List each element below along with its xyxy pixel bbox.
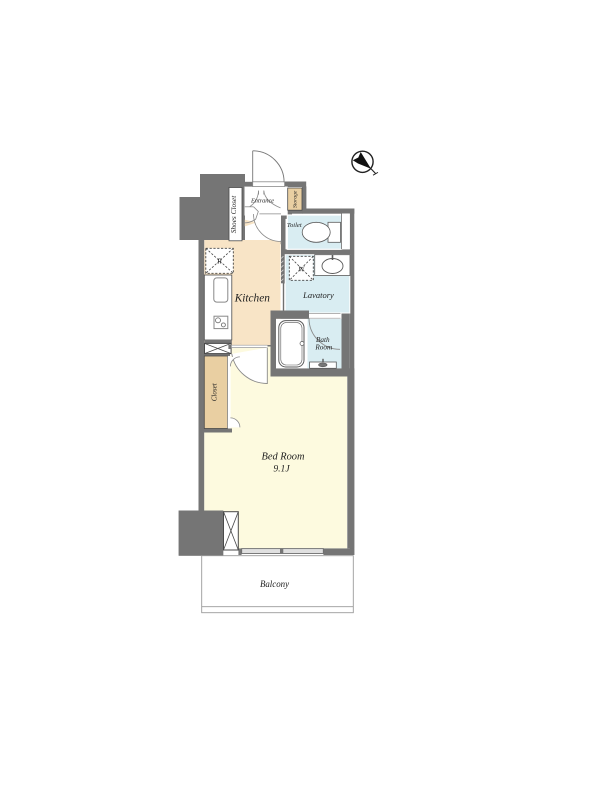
svg-text:Balcony: Balcony	[260, 579, 289, 589]
svg-text:9.1J: 9.1J	[273, 464, 290, 475]
svg-text:Shoes Closet: Shoes Closet	[229, 195, 238, 233]
svg-text:W: W	[298, 265, 305, 273]
svg-text:Closet: Closet	[211, 382, 219, 401]
svg-text:Toilet: Toilet	[287, 222, 302, 229]
svg-text:Kitchen: Kitchen	[234, 293, 270, 305]
svg-text:R: R	[216, 257, 222, 265]
svg-text:Entrance: Entrance	[250, 198, 274, 205]
svg-text:Room: Room	[314, 344, 332, 352]
svg-text:Storage: Storage	[293, 190, 299, 208]
svg-text:Lavatory: Lavatory	[302, 290, 334, 300]
svg-text:Bed Room: Bed Room	[262, 452, 305, 463]
